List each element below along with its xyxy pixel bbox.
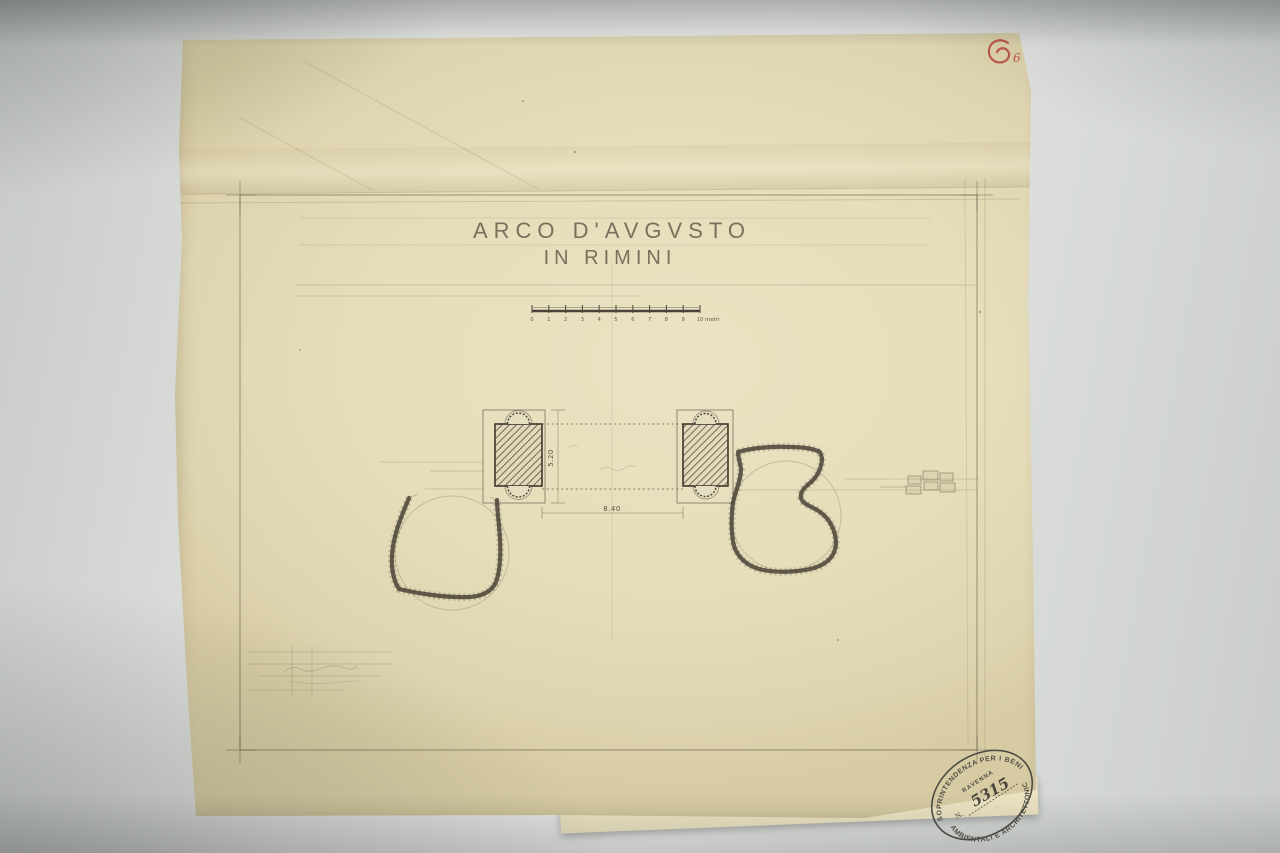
- red-number-text: 6: [1013, 51, 1021, 65]
- svg-text:2: 2: [564, 317, 567, 323]
- scale-bar: 012345678910 metri: [530, 305, 720, 323]
- svg-text:7: 7: [648, 317, 651, 323]
- photo-scene: ARCO D'AVGVSTO IN RIMINI 012345678910 me…: [0, 0, 1280, 853]
- right-pylon-bottom-column-base: [695, 486, 716, 497]
- title-block: ARCO D'AVGVSTO IN RIMINI: [473, 218, 751, 269]
- right-pylon: [677, 410, 733, 503]
- svg-text:9: 9: [682, 317, 685, 323]
- right-pylon-top-column-base: [695, 414, 716, 424]
- drawing-overlay: ARCO D'AVGVSTO IN RIMINI 012345678910 me…: [0, 0, 1280, 853]
- svg-text:4: 4: [598, 317, 601, 323]
- construction-lines: [295, 218, 978, 640]
- pencil-sketch-notes: [248, 646, 392, 695]
- pencil-note-center: [600, 466, 635, 471]
- scale-unit-label: metri: [705, 317, 720, 323]
- left-ruin-outline: [392, 494, 509, 610]
- left-pylon-bottom-column-base: [508, 486, 530, 497]
- stamp-number-prefix: N.: [953, 809, 964, 821]
- paper-specks: [299, 100, 981, 641]
- svg-text:5: 5: [614, 317, 617, 323]
- stamp-number-handwritten: 5315: [967, 774, 1012, 810]
- svg-text:1: 1: [547, 317, 550, 323]
- red-number-annotation: 6: [989, 40, 1021, 65]
- title-line2: IN RIMINI: [544, 247, 677, 269]
- left-pylon: [483, 410, 545, 503]
- right-ruin-outline: [731, 447, 841, 572]
- svg-text:8: 8: [665, 317, 668, 323]
- svg-text:SOPRINTENDENZA PER I BENI: SOPRINTENDENZA PER I BENI: [920, 738, 1025, 824]
- title-line1: ARCO D'AVGVSTO: [473, 218, 751, 243]
- svg-text:6: 6: [631, 317, 634, 323]
- svg-text:0: 0: [530, 317, 533, 323]
- dimension-horizontal-label: 8.40: [603, 505, 621, 513]
- svg-text:3: 3: [581, 317, 584, 323]
- paper-wrinkles: [180, 62, 1020, 745]
- left-pylon-top-column-base: [508, 413, 530, 424]
- stone-blocks-sketch: [880, 471, 955, 494]
- stamp-arc-top-text: SOPRINTENDENZA PER I BENI: [920, 738, 1025, 824]
- dimension-vertical-label: 5.20: [547, 449, 555, 467]
- svg-text:10: 10: [697, 317, 703, 323]
